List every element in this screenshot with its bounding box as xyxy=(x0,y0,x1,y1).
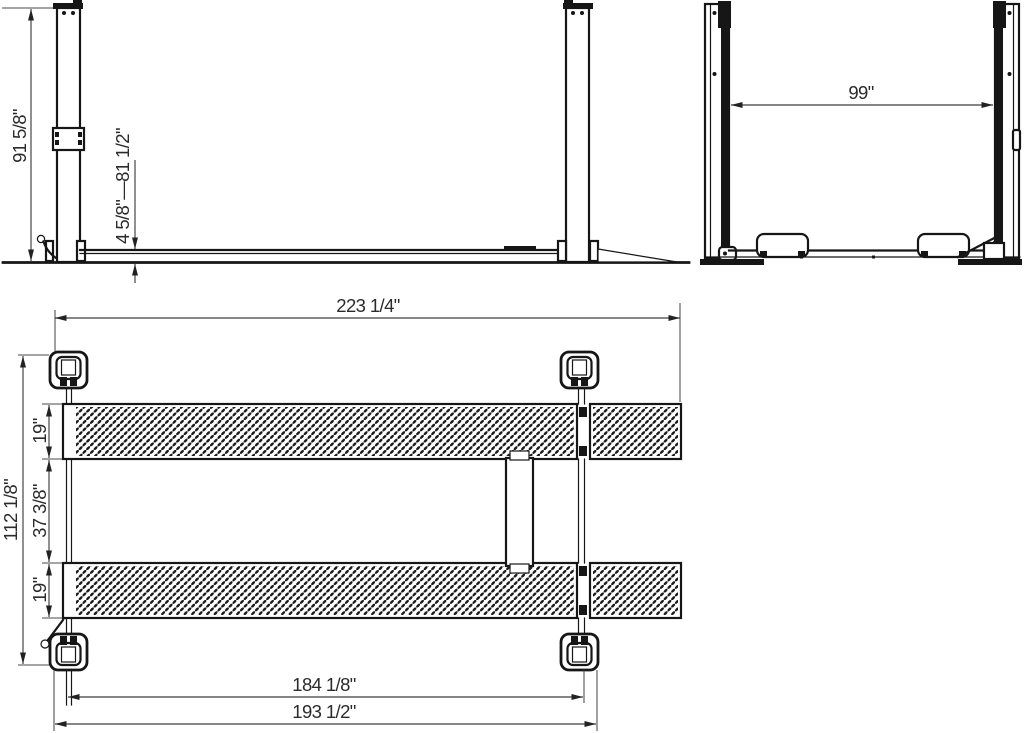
post-top-right xyxy=(561,352,598,388)
lifting-range-label: 4 5/8"—81 1/2" xyxy=(112,128,133,244)
corner-box xyxy=(984,243,1004,259)
post-top-left xyxy=(50,352,87,388)
column-height-label: 91 5/8" xyxy=(9,109,30,163)
dim-lifting-range: 4 5/8"—81 1/2" xyxy=(112,128,135,283)
four-post-lift-dimension-diagram: 91 5/8" 4 5/8"—81 1/2" xyxy=(0,0,1024,733)
overall-width-label: 112 1/8" xyxy=(0,479,21,541)
runway-bottom xyxy=(63,563,681,618)
dim-column-height: 91 5/8" xyxy=(2,8,53,261)
dim-width-between-columns: 99" xyxy=(731,82,993,105)
rail-length-label: 193 1/2" xyxy=(292,701,356,722)
runway-top xyxy=(63,404,681,459)
side-left-column xyxy=(37,0,85,262)
side-runway xyxy=(80,246,599,254)
column-handle xyxy=(1013,130,1020,150)
plan-view: 223 1/4" 112 1/8" 19" 37 3/8" 19" xyxy=(0,295,681,731)
dim-runway-width-bottom: 19" xyxy=(29,563,62,618)
side-right-column xyxy=(558,0,677,262)
length-between-locks-label: 184 1/8" xyxy=(292,674,356,695)
runway-stop-plate xyxy=(504,246,536,251)
approach-ramp-side xyxy=(598,249,677,262)
post-bottom-right xyxy=(561,634,598,670)
front-right-column xyxy=(993,1,1020,258)
dim-runway-width-top: 19" xyxy=(29,404,62,459)
lift-dimension-diagram-page: 91 5/8" 4 5/8"—81 1/2" xyxy=(0,0,1024,733)
post-bottom-left xyxy=(50,634,87,670)
crossbeam xyxy=(506,451,533,573)
runway-width-bottom-label: 19" xyxy=(29,577,50,602)
dim-between-runways: 37 3/8" xyxy=(29,460,50,562)
between-runways-label: 37 3/8" xyxy=(29,484,50,538)
dim-length-between-locks: 184 1/8" xyxy=(68,670,584,703)
front-view: 99" xyxy=(700,1,1022,265)
overall-length-label: 223 1/4" xyxy=(336,295,400,316)
runway-width-top-label: 19" xyxy=(29,418,50,443)
front-base xyxy=(700,231,1022,265)
side-view: 91 5/8" 4 5/8"—81 1/2" xyxy=(2,0,689,283)
front-left-column xyxy=(705,1,736,260)
width-between-columns-label: 99" xyxy=(848,82,873,103)
safety-lock-box xyxy=(53,128,84,150)
